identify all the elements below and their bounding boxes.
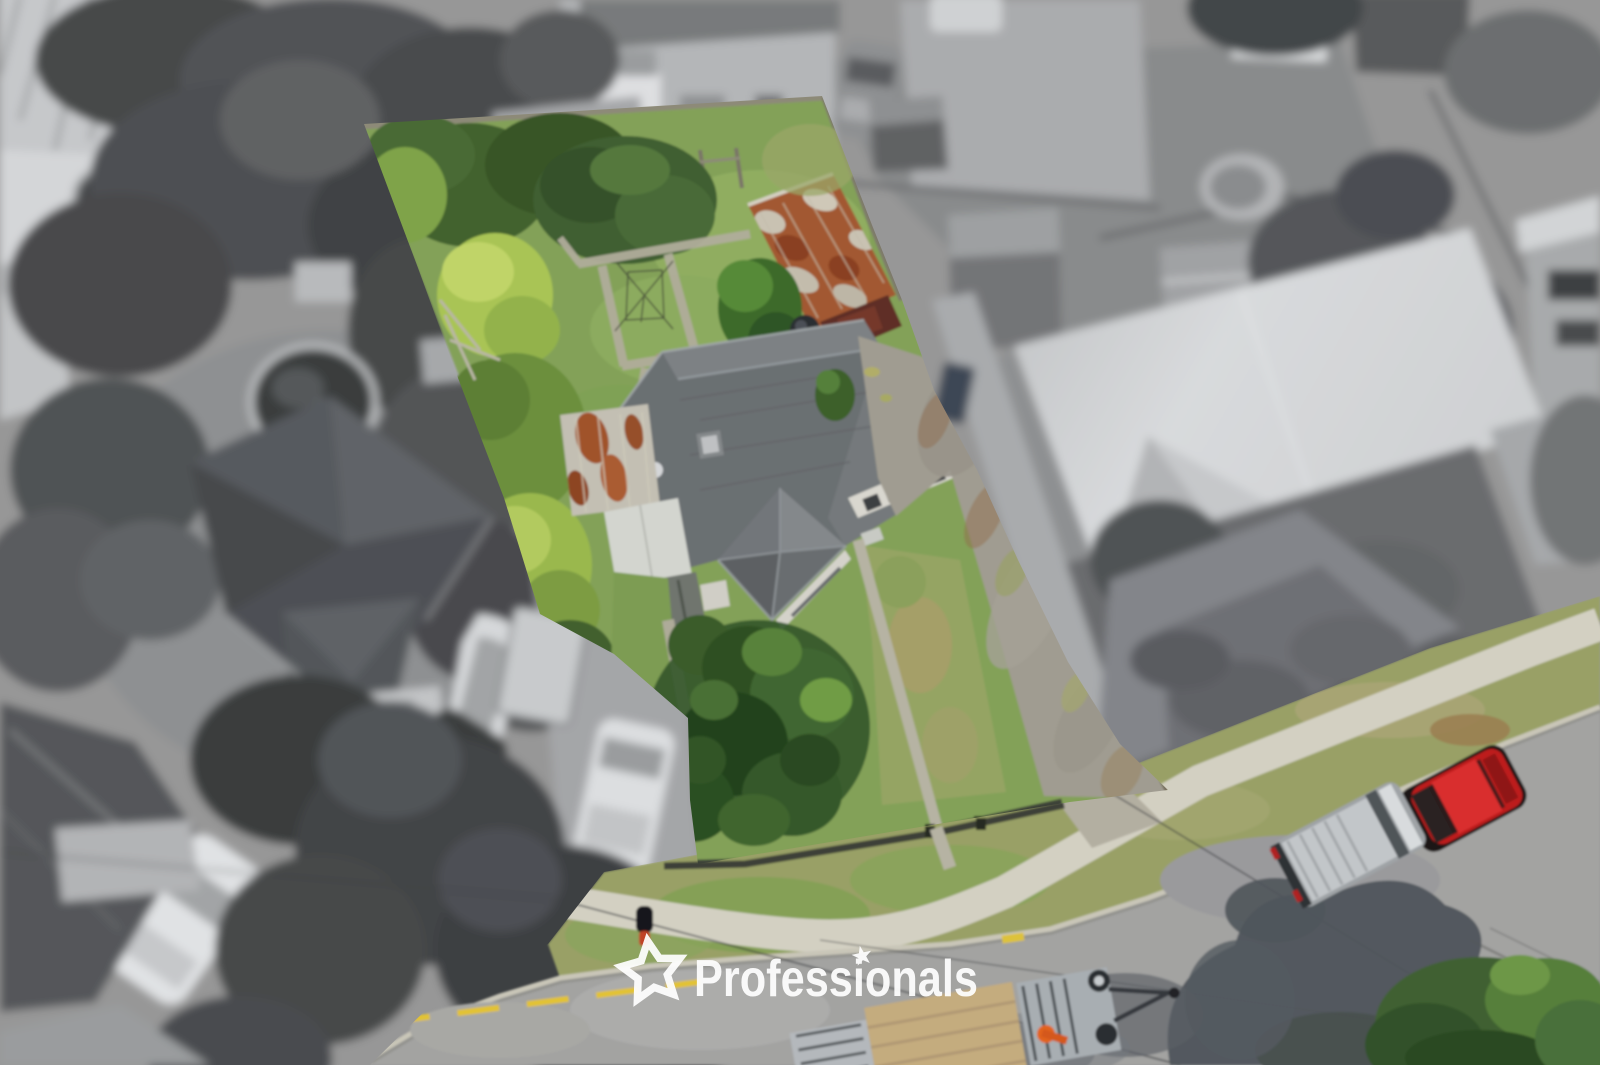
svg-text:Professionals: Professionals <box>694 950 978 1008</box>
